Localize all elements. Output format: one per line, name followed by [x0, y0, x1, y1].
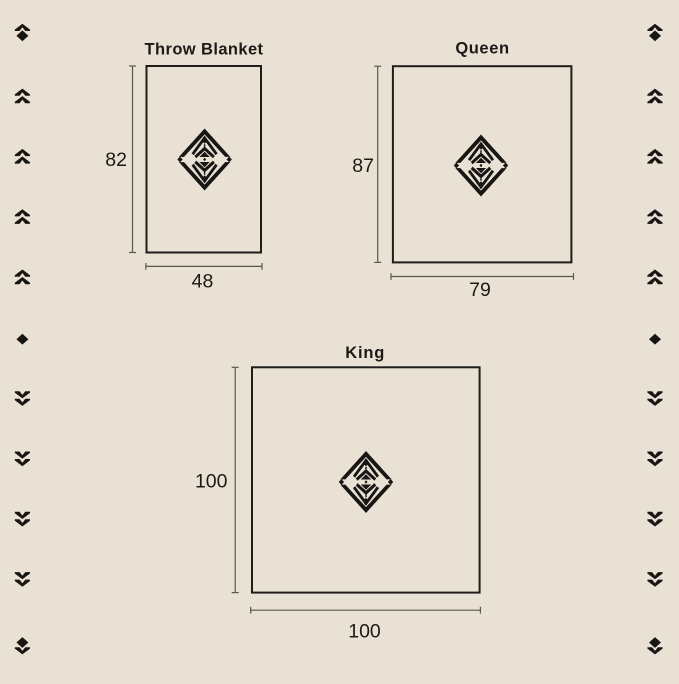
svg-text:100: 100 [348, 621, 381, 643]
svg-text:48: 48 [192, 270, 214, 292]
svg-text:King: King [345, 344, 385, 362]
svg-text:82: 82 [105, 149, 127, 171]
svg-text:Throw Blanket: Throw Blanket [145, 41, 264, 59]
svg-text:79: 79 [469, 279, 491, 301]
svg-text:Queen: Queen [455, 40, 509, 58]
svg-text:87: 87 [352, 155, 374, 177]
svg-text:100: 100 [195, 470, 228, 492]
